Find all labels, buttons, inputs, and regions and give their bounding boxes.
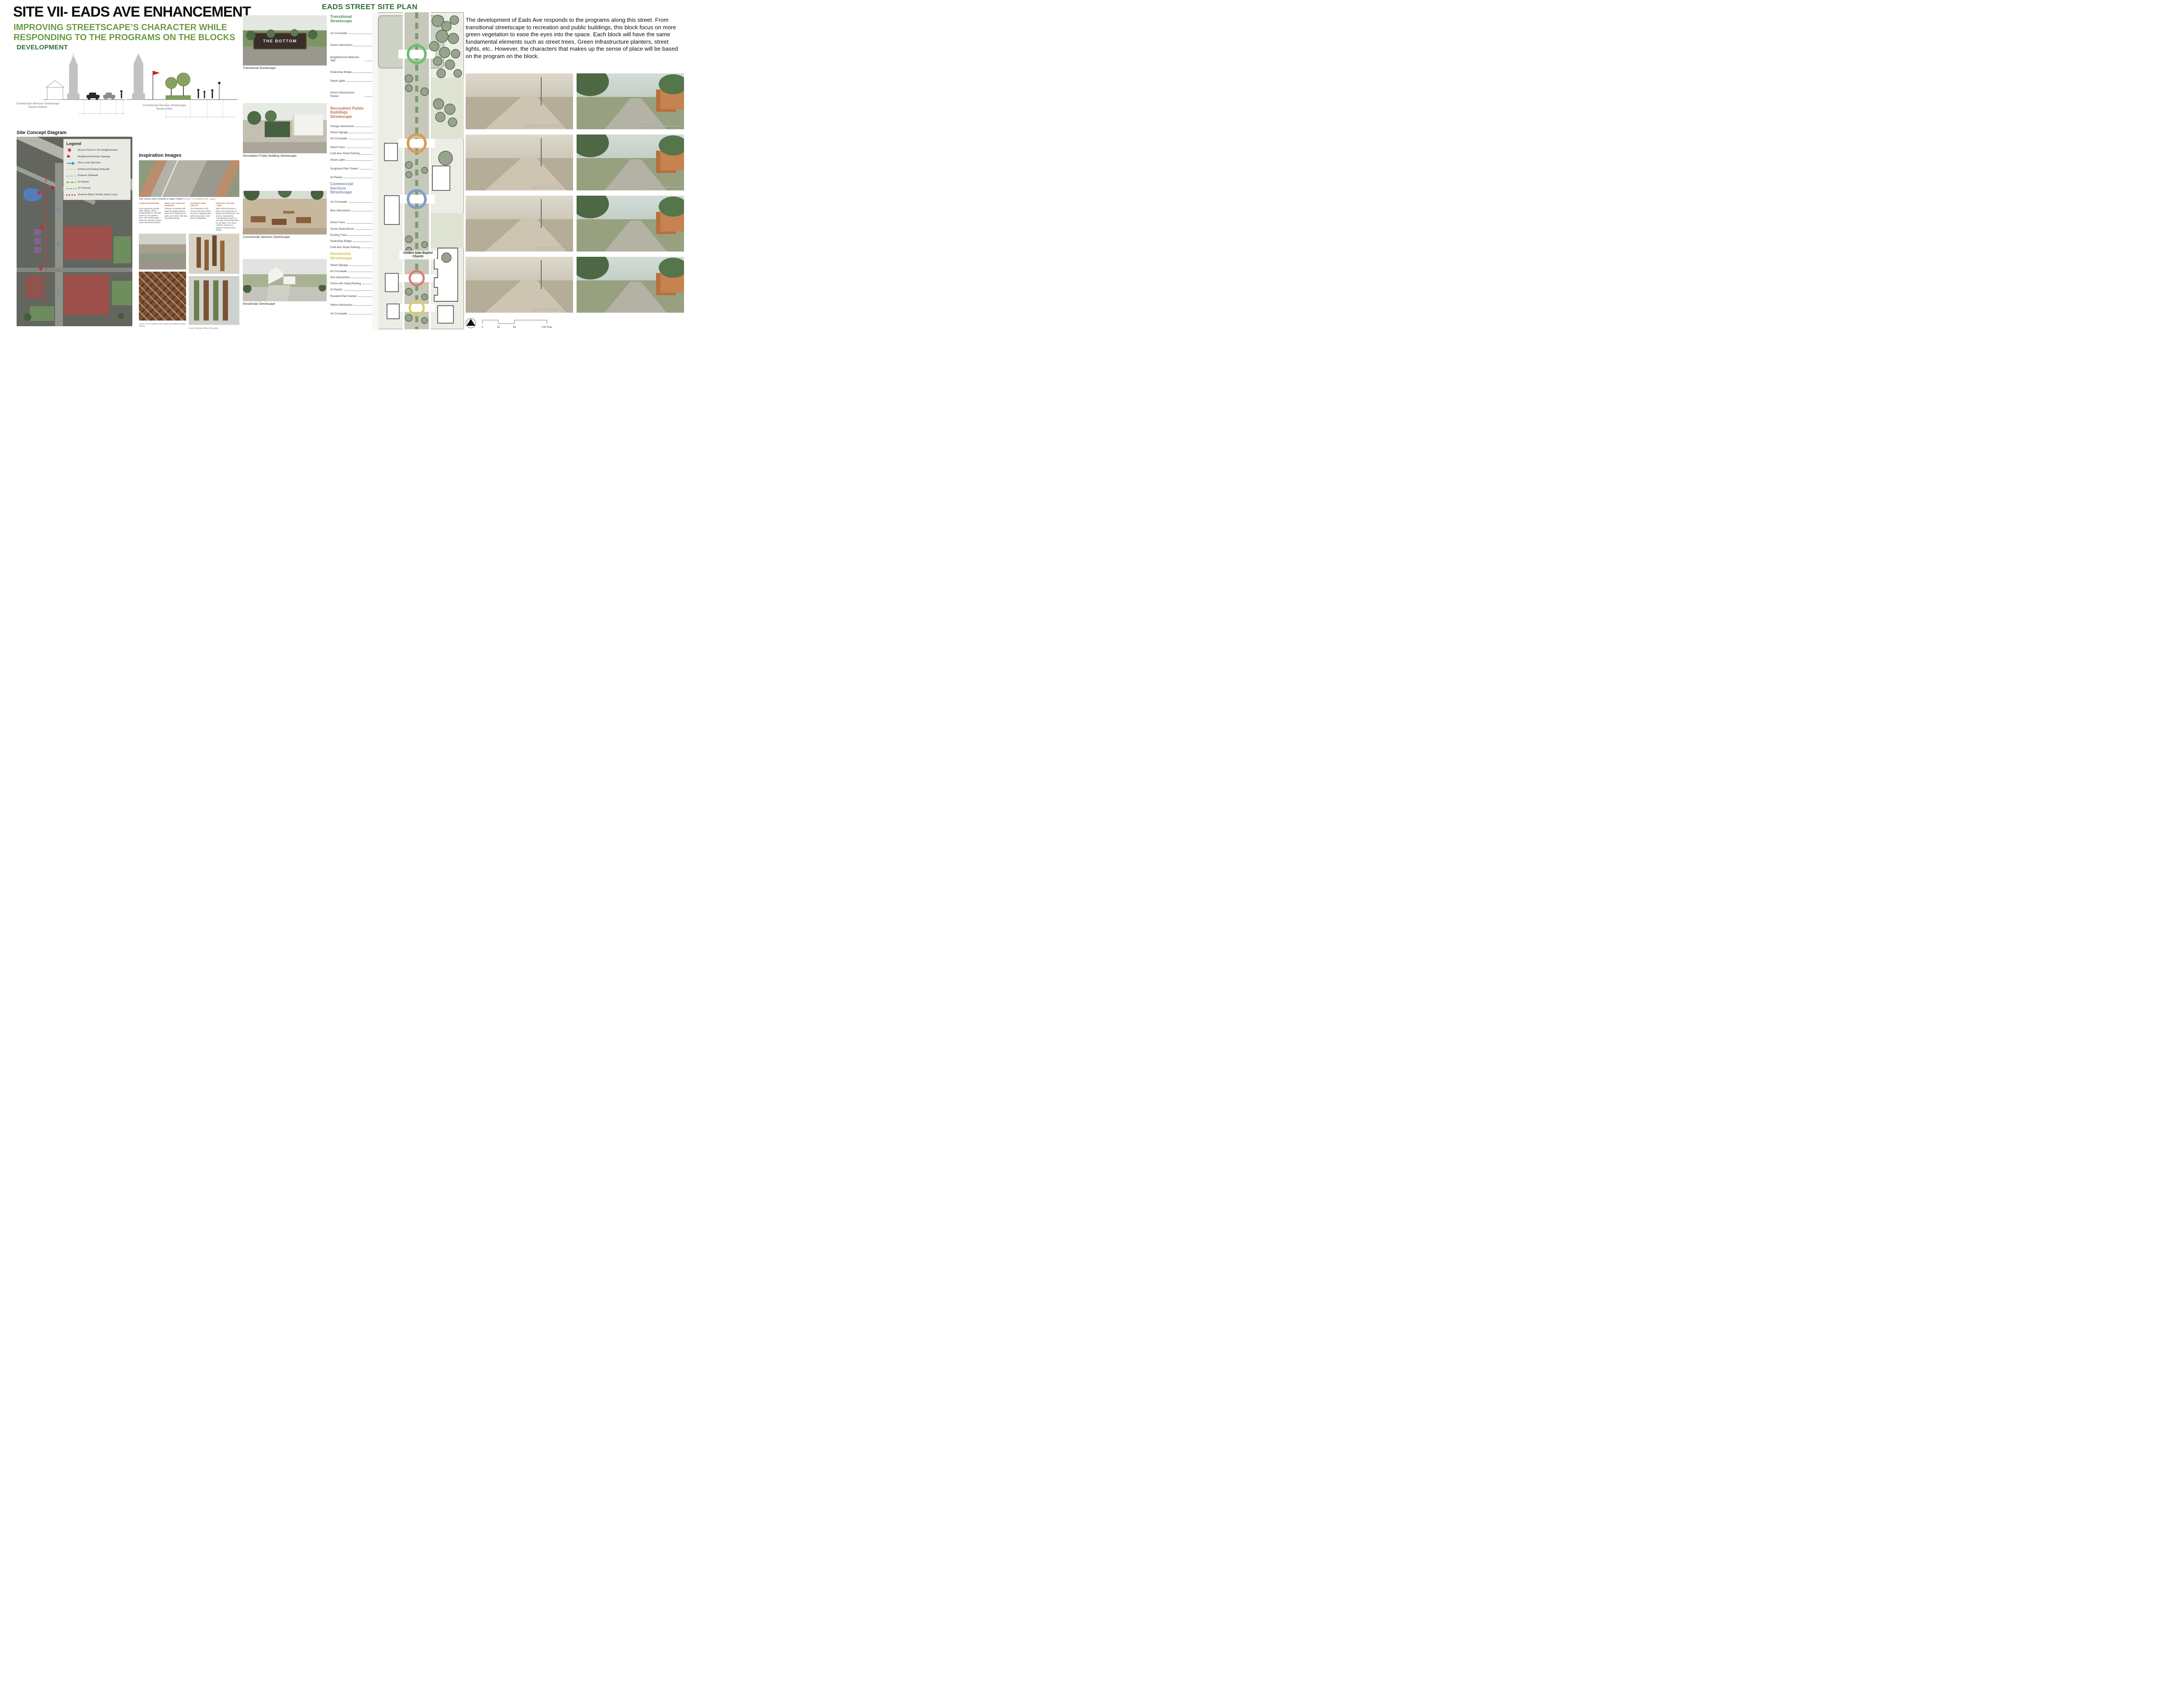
- street-photo: EADS ST FACING NORTH: BEFORE: [466, 257, 573, 313]
- dotted-leader: [346, 148, 373, 148]
- photo-sky: [466, 73, 573, 97]
- photo-caption: COMAL ST AND EADS ST. BEFORE: [532, 186, 571, 189]
- photo-caption: DODD ST AND EADS ST. BEFORE: [534, 248, 571, 250]
- pyramid-planter-photo: [139, 272, 186, 321]
- description-paragraph: The development of Eads Ave responds to …: [466, 17, 685, 60]
- site-plan-label: Art Crosswalk: [330, 137, 347, 140]
- inspiration-image-grid: Source: The Principals, Drew Seskunas Mo…: [139, 234, 239, 329]
- section-after: Commercial/ Services Streetscape Section…: [126, 53, 238, 130]
- rendering-recreation: Recreation/ Public Building Streetscape: [243, 103, 327, 158]
- section-after-drawing: [126, 53, 238, 130]
- parcel-green: [112, 281, 132, 305]
- dotted-leader: [347, 160, 373, 161]
- inspiration-column-heading: GATEWAY MINI-CIRCLE: [190, 203, 214, 207]
- site-plan-label-row: Commercial/ Services Streetscape: [330, 182, 373, 195]
- dotted-leader: [347, 81, 373, 82]
- site-plan-label: Pedestrian Bridge: [330, 240, 352, 243]
- street-sections: Commercial/ Services Streetscape Section…: [13, 53, 238, 130]
- parcel-red: [25, 276, 43, 298]
- inspiration-column: GATEWAY MINI-CIRCLE The intersection at …: [190, 203, 214, 231]
- legend-item-label: GI Planter: [78, 181, 89, 183]
- site-plan-label-row: Curb-less Street Parking: [330, 152, 373, 155]
- legend-swatch-icon: [66, 167, 76, 172]
- inspiration-column-body: 25th Avenue becomes a place more support…: [216, 207, 239, 231]
- legend-item-label: Drive Lane Direction: [78, 162, 101, 164]
- scale-tick: 25: [497, 326, 500, 329]
- scale-bar: 0 25 50 100 Feet: [466, 318, 553, 330]
- site-plan-label-row: Social Street Bench: [330, 228, 373, 231]
- site-plan-label: Fence with Hang Planting: [330, 282, 361, 285]
- legend-item: Drive Lane Direction: [66, 161, 128, 166]
- legend-item-label: Access Point To The Neighborhood: [78, 149, 117, 152]
- source-caption: Source: The Principals, Drew Seskunas Mo…: [139, 323, 186, 327]
- dotted-leader: [348, 272, 373, 272]
- street-photo: COLORADO BLVD AND EADS ST. BEFORE: [466, 73, 573, 129]
- inspiration-vision-caption: THE VISION, 25TH AVENUE & AMES STREET So…: [139, 198, 239, 201]
- street-photo: [577, 196, 684, 252]
- drive-lane-arrow: ➜: [42, 267, 46, 272]
- section-before: Commercial/ Services Streetscape Section…: [13, 53, 126, 130]
- legend-item-label: GI Treewell: [78, 187, 90, 190]
- access-point-marker: ✱: [37, 190, 41, 196]
- rendering-residential: Residential Streetscape: [243, 259, 327, 306]
- site-plan-label-row: Neighborhood Welcome Sign: [330, 56, 373, 62]
- rendering-caption: Commercial/ Services Streetscape: [243, 236, 327, 239]
- legend-swatch-icon: [66, 180, 76, 184]
- photo-caption: EADS ST FACING NORTH: BEFORE: [532, 309, 571, 311]
- legend-items: Access Point To The Neighborhood Neighbo…: [66, 148, 128, 197]
- wood-towers-photo: [189, 234, 239, 274]
- section-before-drawing: [13, 53, 126, 130]
- dotted-leader: [361, 154, 373, 155]
- rendering-image: THE BOTTOM: [243, 15, 327, 66]
- site-plan-label: Street Lights: [330, 79, 346, 83]
- rendering-caption: Transitional Streetscape: [243, 67, 327, 70]
- site-plan-label-row: Street Lights: [330, 159, 373, 162]
- site-plan-label: Resident Rain Garden: [330, 295, 357, 298]
- dotted-leader: [348, 34, 373, 34]
- site-plan-label-row: Street Signage: [330, 131, 373, 134]
- vision-title: THE VISION, 25TH AVENUE & AMES STREET: [139, 198, 183, 200]
- rendering-transitional: THE BOTTOM Transitional Streetscape: [243, 15, 327, 70]
- street-photo: [577, 257, 684, 313]
- site-plan-label-row: Residential Streetscape: [330, 252, 373, 260]
- inspiration-street-photo: [139, 160, 239, 197]
- inspiration-left-column: Source: The Principals, Drew Seskunas Mo…: [139, 234, 186, 329]
- drive-lane-arrow: ➜: [82, 267, 86, 272]
- dotted-leader: [348, 314, 373, 314]
- dotted-leader: [354, 305, 373, 306]
- drive-lane-arrow: ➜: [55, 207, 60, 211]
- site-plan-label-row: Art Crosswalk: [330, 312, 373, 315]
- dotted-leader: [349, 133, 373, 133]
- page-title: SITE VII- EADS AVE ENHANCEMENT: [13, 3, 251, 20]
- inspiration-column: HEAD OUT ANGLED PARKING Parking is incre…: [165, 203, 188, 231]
- dotted-leader: [361, 248, 373, 248]
- inspiration-column-heading: ONE-WAY TRAVEL LANE: [216, 203, 239, 207]
- legend-swatch-icon: [66, 148, 76, 153]
- dotted-leader: [348, 139, 373, 139]
- gateway-sign: THE BOTTOM: [253, 33, 307, 49]
- site-plan-label-row: Fence with Hang Planting: [330, 282, 373, 285]
- sharrow-route: [45, 175, 46, 306]
- photo-building: [660, 206, 684, 231]
- rendering-caption: Recreation/ Public Building Streetscape: [243, 155, 327, 158]
- dotted-leader: [344, 178, 373, 178]
- legend-title: Legend: [66, 141, 128, 146]
- site-plan-label: Street Trees: [330, 146, 345, 149]
- site-plan-label: Blue Intersection: [330, 209, 350, 212]
- site-plan-label-row: Sculptural Plant Towers: [330, 167, 373, 170]
- street-photo: COLORADO BLVD AND EADS ST. AFTER: [577, 73, 684, 129]
- parcel-red: [64, 226, 112, 259]
- street-photo: COMAL ST AND EADS ST. AFTER: [577, 135, 684, 190]
- site-plan-label-row: GI Planter: [330, 176, 373, 179]
- page-subtitle: IMPROVING STREETSCAPE’S CHARACTER WHILE …: [14, 23, 252, 43]
- site-plan-label: Pedestrian Bridge: [330, 71, 352, 74]
- legend-item: GI Planter: [66, 180, 128, 184]
- photo-sky: [466, 257, 573, 280]
- legend-swatch-icon: [66, 193, 76, 197]
- inspiration-column-heading: HEAD OUT ANGLED PARKING: [165, 203, 188, 207]
- dotted-leader: [346, 223, 373, 224]
- site-plan-label-row: Green Infrastructure Planter: [330, 91, 373, 97]
- site-plan-label: Red Intersection: [330, 276, 350, 279]
- scale-tick: 100 Feet: [542, 326, 552, 329]
- legend-swatch-icon: [66, 161, 76, 166]
- site-plan-label-row: Orange Intersection: [330, 125, 373, 128]
- inspiration-panel: Inspiration Images THE VISION, 25TH AVEN…: [139, 153, 239, 327]
- site-plan-label-row: Art Crosswalk: [330, 200, 373, 204]
- site-concept-heading: Site Concept Diagram: [17, 130, 66, 135]
- site-plan-label: Sculptural Plant Towers: [330, 167, 359, 170]
- site-plan-label: Commercial/ Services Streetscape: [330, 182, 368, 195]
- dotted-leader: [360, 169, 373, 169]
- site-plan-label-row: Street Signage: [330, 264, 373, 267]
- dotted-leader: [349, 235, 373, 236]
- site-plan-label-row: Existing Trees: [330, 234, 373, 237]
- cross-street: [17, 268, 132, 272]
- inspiration-column: CURB EXTENSIONS Curb extensions provide …: [139, 203, 162, 231]
- parcel-green: [30, 306, 54, 321]
- site-plan-label-row: Art Crosswalk: [330, 137, 373, 140]
- site-plan-label: Social Street Bench: [330, 228, 354, 231]
- site-plan-label-row: Pedestrian Bridge: [330, 71, 373, 74]
- dotted-leader: [353, 241, 373, 242]
- site-plan-label-row: Street Lights: [330, 79, 373, 83]
- site-plan-drawing: Golden Gate Baptist Church: [372, 12, 464, 329]
- dotted-leader: [344, 290, 373, 291]
- rendering-image: [243, 259, 327, 301]
- site-plan-label: GI Planter: [330, 288, 342, 291]
- scale-tick: 50: [513, 326, 516, 329]
- legend-item: Enhanced Existing Sidewalk: [66, 167, 128, 172]
- site-plan-heading: EADS STREET SITE PLAN: [322, 3, 418, 11]
- site-plan-label: Existing Trees: [330, 234, 347, 237]
- photo-sky: [466, 196, 573, 219]
- legend-box: Legend Access Point To The Neighborhood …: [63, 139, 131, 200]
- storefront-street-photo: [139, 234, 186, 269]
- photo-building: [660, 145, 684, 170]
- site-plan-label: Curb-less Street Parking: [330, 152, 359, 155]
- site-plan-label: Transitional Streetscape: [330, 15, 368, 23]
- before-after-photo-grid: COLORADO BLVD AND EADS ST. BEFORE COLORA…: [466, 73, 684, 313]
- inspiration-right-column: Source: Modular Planter Placement: [189, 234, 239, 329]
- inspiration-columns: CURB EXTENSIONS Curb extensions provide …: [139, 203, 239, 231]
- section-after-label: Commercial/ Services Streetscape Section…: [138, 104, 190, 111]
- dotted-leader: [352, 211, 373, 211]
- site-plan-label-row: Curb-less Street Parking: [330, 246, 373, 249]
- site-plan-label: Art Crosswalk: [330, 200, 347, 204]
- site-plan-label-row: Recreation/ Public Buildings Streetscape: [330, 107, 373, 119]
- photo-caption: COMAL ST AND EADS ST. AFTER: [646, 186, 682, 189]
- dotted-leader: [353, 72, 373, 73]
- dotted-leader: [355, 127, 373, 127]
- site-plan-label-row: Yellow Intersection: [330, 304, 373, 307]
- site-plan-label-row: Red Intersection: [330, 276, 373, 279]
- inspiration-column-heading: CURB EXTENSIONS: [139, 203, 162, 207]
- legend-swatch-icon: [66, 155, 76, 159]
- legend-item-label: Propose Sidewalk: [78, 174, 98, 177]
- site-plan-label: Residential Streetscape: [330, 252, 368, 260]
- vision-source: Source: The Mobility Plan - page 3: [184, 198, 217, 200]
- rendering-caption: Residential Streetscape: [243, 303, 327, 306]
- site-plan-label: Orange Intersection: [330, 125, 354, 128]
- photo-building: [660, 267, 684, 293]
- site-plan-label-row: Art Crosswalk: [330, 270, 373, 273]
- dotted-leader: [354, 46, 373, 46]
- site-concept-map: ✱ ✱ ✱ ▶ ➜ ➜ ➜ ➜ ➜ ➜ Legend Access Point …: [17, 137, 132, 326]
- site-plan-label-row: Street Trees: [330, 146, 373, 149]
- dotted-leader: [351, 278, 373, 278]
- source-caption: Source: Modular Planter Placement: [189, 327, 239, 329]
- site-plan-label: Recreation/ Public Buildings Streetscape: [330, 107, 368, 119]
- street-photo: COMAL ST AND EADS ST. BEFORE: [466, 135, 573, 190]
- legend-item: Sharrow (Bike/ Vehicle share Lane): [66, 193, 128, 197]
- legend-item: Propose Sidewalk: [66, 174, 128, 178]
- site-plan-label: Curb-less Street Parking: [330, 246, 359, 249]
- tree-blob: [118, 313, 124, 319]
- site-plan-label: Art Crosswalk: [330, 32, 347, 35]
- site-plan-label: Green Intersection: [330, 44, 352, 47]
- legend-swatch-icon: [66, 186, 76, 191]
- site-plan-label-row: Green Intersection: [330, 44, 373, 47]
- legend-item: Neighborhood Entry Signage: [66, 155, 128, 159]
- dotted-leader: [358, 297, 373, 297]
- parcel-green: [114, 236, 131, 263]
- access-point-marker: ✱: [39, 225, 44, 231]
- presentation-board: SITE VII- EADS AVE ENHANCEMENT IMPROVING…: [0, 0, 692, 338]
- site-plan-label-row: Blue Intersection: [330, 209, 373, 212]
- site-plan-label: Green Infrastructure Planter: [330, 91, 363, 97]
- site-plan-label-column: Transitional Streetscape Art Crosswalk G…: [330, 14, 373, 327]
- inspiration-column-body: Parking is increased with head out angle…: [165, 207, 188, 219]
- photo-caption: COLORADO BLVD AND EADS ST. BEFORE: [525, 125, 571, 128]
- dotted-leader: [349, 266, 373, 266]
- scale-tick: 0: [481, 326, 483, 329]
- inspiration-column-body: The intersection at 25 Avenue and Ames S…: [190, 207, 214, 219]
- photo-caption: COLORADO BLVD AND EADS ST. AFTER: [638, 125, 682, 128]
- site-plan-label: Street Lights: [330, 159, 346, 162]
- scale-bar-svg: 0 25 50 100 Feet: [466, 318, 553, 330]
- inspiration-heading: Inspiration Images: [139, 153, 239, 158]
- section-before-label: Commercial/ Services Streetscape Section…: [16, 102, 59, 109]
- legend-swatch-icon: [66, 174, 76, 178]
- site-plan-label: Neighborhood Welcome Sign: [330, 56, 363, 62]
- drive-lane-arrow: ➜: [55, 241, 60, 245]
- site-plan-label-row: Transitional Streetscape: [330, 15, 373, 23]
- legend-item-label: Sharrow (Bike/ Vehicle share Lane): [78, 193, 117, 196]
- site-plan-label-row: Street Trees: [330, 221, 373, 224]
- legend-item: Access Point To The Neighborhood: [66, 148, 128, 153]
- site-plan-label: Yellow Intersection: [330, 304, 352, 307]
- church-label: Golden Gate Baptist Church: [399, 251, 437, 259]
- site-plan-label: GI Planter: [330, 176, 342, 179]
- rendering-commercial: Commercial/ Services Streetscape: [243, 191, 327, 239]
- site-plan-label: Art Crosswalk: [330, 312, 347, 315]
- inspiration-column: ONE-WAY TRAVEL LANE 25th Avenue becomes …: [216, 203, 239, 231]
- dotted-leader: [363, 284, 373, 284]
- inspiration-column-body: Curb extensions provide safer parking, n…: [139, 207, 162, 224]
- parcel-red: [64, 275, 109, 315]
- rendering-image: [243, 191, 327, 235]
- development-heading: DEVELOPMENT: [17, 44, 68, 51]
- photo-sky: [466, 135, 573, 158]
- planter-towers-photo: [189, 276, 239, 325]
- site-plan-label: Street Signage: [330, 131, 348, 134]
- legend-item-label: Enhanced Existing Sidewalk: [78, 168, 110, 171]
- site-plan-svg: [372, 12, 464, 329]
- legend-item-label: Neighborhood Entry Signage: [78, 155, 110, 158]
- photo-building: [660, 83, 684, 109]
- drive-lane-arrow: ➜: [55, 291, 60, 295]
- drive-lane-arrow: ➜: [66, 267, 69, 272]
- site-plan-label-row: Art Crosswalk: [330, 32, 373, 35]
- legend-item: GI Treewell: [66, 186, 128, 191]
- site-plan-label: Art Crosswalk: [330, 270, 347, 273]
- dotted-leader: [348, 202, 373, 203]
- rendering-column: THE BOTTOM Transitional Streetscape Recr…: [243, 15, 327, 306]
- dotted-leader: [355, 229, 373, 230]
- site-plan-label-row: GI Planter: [330, 288, 373, 291]
- rendering-image: [243, 103, 327, 153]
- site-plan-label: Street Trees: [330, 221, 345, 224]
- street-photo: DODD ST AND EADS ST. BEFORE: [466, 196, 573, 252]
- site-plan-label-row: Pedestrian Bridge: [330, 240, 373, 243]
- site-plan-label-row: Resident Rain Garden: [330, 295, 373, 298]
- site-plan-label: Street Signage: [330, 264, 348, 267]
- tree-blob: [24, 313, 31, 321]
